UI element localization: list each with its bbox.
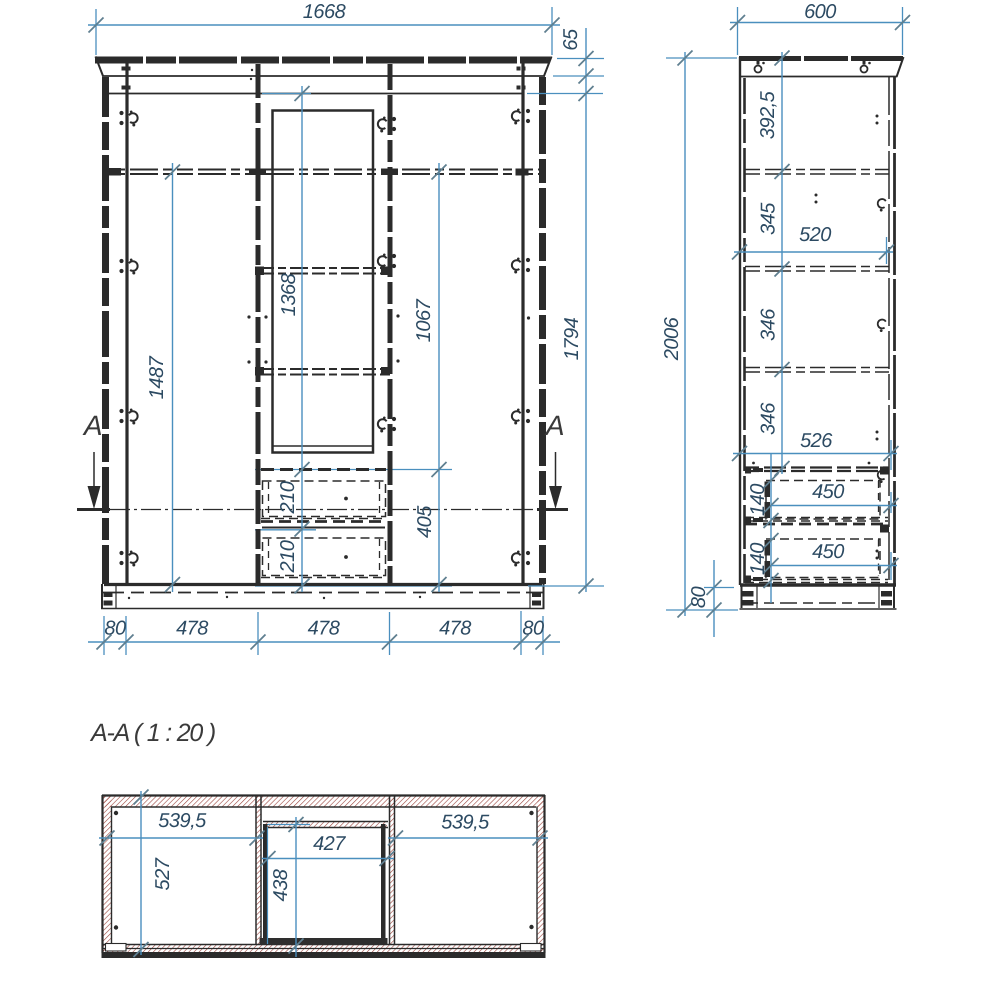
svg-text:1368: 1368 (278, 273, 300, 316)
svg-text:346: 346 (758, 308, 780, 341)
svg-text:526: 526 (800, 430, 833, 452)
svg-text:1487: 1487 (146, 355, 168, 399)
svg-text:600: 600 (804, 1, 836, 23)
svg-text:346: 346 (758, 402, 780, 435)
svg-text:450: 450 (812, 541, 844, 563)
svg-text:140: 140 (747, 543, 769, 575)
svg-text:1794: 1794 (561, 317, 583, 360)
svg-text:478: 478 (439, 618, 471, 640)
svg-text:A: A (544, 410, 564, 441)
svg-text:A-A ( 1 : 20 ): A-A ( 1 : 20 ) (89, 719, 215, 747)
svg-text:405: 405 (414, 505, 436, 538)
svg-text:80: 80 (104, 618, 126, 640)
svg-text:450: 450 (812, 481, 844, 503)
svg-text:478: 478 (176, 618, 208, 640)
svg-text:438: 438 (270, 869, 292, 901)
svg-text:80: 80 (522, 618, 544, 640)
svg-text:140: 140 (747, 484, 769, 516)
svg-text:427: 427 (313, 833, 346, 855)
svg-text:1067: 1067 (413, 298, 435, 342)
svg-text:345: 345 (758, 202, 780, 235)
svg-text:539,5: 539,5 (158, 810, 207, 832)
svg-text:210: 210 (277, 481, 299, 514)
svg-text:478: 478 (308, 618, 340, 640)
svg-text:392,5: 392,5 (757, 90, 779, 139)
svg-text:1668: 1668 (303, 1, 346, 23)
svg-text:527: 527 (152, 857, 174, 890)
svg-text:A: A (82, 410, 102, 441)
svg-text:210: 210 (277, 540, 299, 573)
svg-text:80: 80 (688, 587, 710, 609)
svg-text:2006: 2006 (661, 316, 683, 361)
svg-text:65: 65 (560, 28, 582, 51)
svg-text:539,5: 539,5 (441, 812, 490, 834)
svg-text:520: 520 (799, 224, 831, 246)
